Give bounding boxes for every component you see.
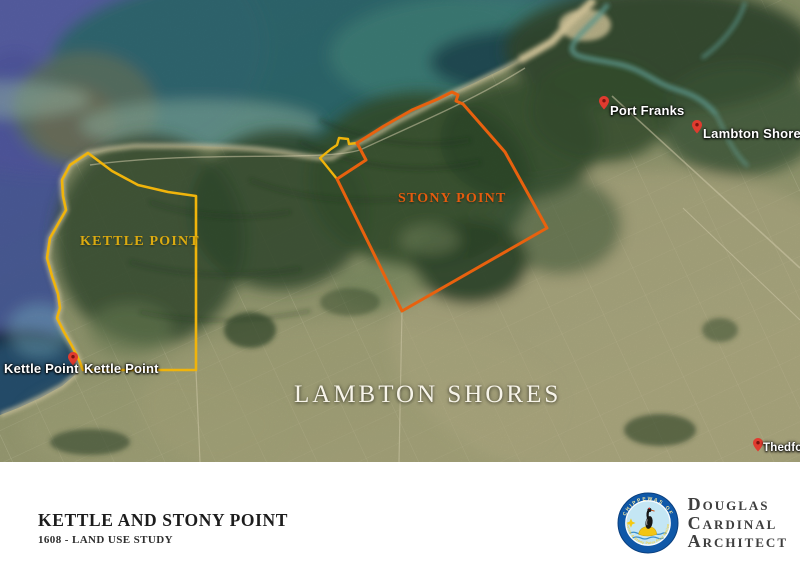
- title-block: KETTLE AND STONY POINT 1608 - LAND USE S…: [38, 510, 288, 546]
- chippewas-first-nation-badge-icon: CHIPPEWAS OF Kettle & Stony Point First …: [617, 492, 679, 554]
- architect-name-line3: Architect: [688, 532, 788, 550]
- map-pin-icon: [599, 96, 609, 110]
- land-use-study-page: KETTLE POINT STONY POINT LAMBTON SHORES …: [0, 0, 800, 566]
- footer: KETTLE AND STONY POINT 1608 - LAND USE S…: [0, 462, 800, 566]
- satellite-map: KETTLE POINT STONY POINT LAMBTON SHORES …: [0, 0, 800, 462]
- map-pin-icon: [68, 352, 78, 366]
- architect-name: Douglas Cardinal Architect: [688, 495, 788, 550]
- page-title: KETTLE AND STONY POINT: [38, 510, 288, 531]
- map-pin-icon: [692, 120, 702, 134]
- architect-brand: CHIPPEWAS OF Kettle & Stony Point First …: [617, 492, 788, 554]
- architect-name-line1: Douglas: [688, 495, 788, 513]
- architect-name-line2: Cardinal: [688, 514, 788, 532]
- map-pin-icon: [753, 438, 763, 452]
- satellite-imagery: [0, 0, 800, 462]
- page-subtitle: 1608 - LAND USE STUDY: [38, 534, 288, 546]
